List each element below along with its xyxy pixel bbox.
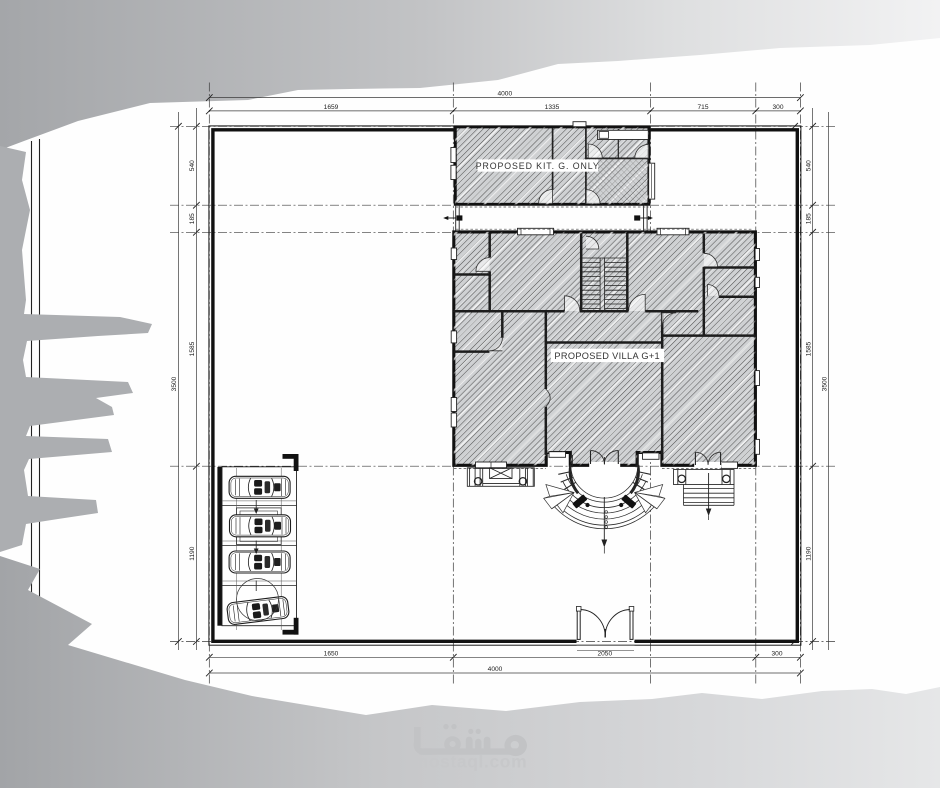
svg-text:1190: 1190 (189, 546, 196, 561)
svg-text:540: 540 (189, 160, 196, 171)
svg-text:300: 300 (772, 104, 783, 111)
svg-text:1659: 1659 (324, 104, 339, 111)
svg-text:300: 300 (771, 650, 782, 657)
svg-text:540: 540 (805, 160, 812, 171)
svg-text:3500: 3500 (171, 376, 178, 391)
svg-text:1585: 1585 (805, 341, 812, 356)
svg-text:715: 715 (697, 104, 708, 111)
svg-text:2050: 2050 (597, 650, 612, 657)
svg-text:PROPOSED VILLA G+1: PROPOSED VILLA G+1 (554, 351, 660, 361)
svg-text:1650: 1650 (324, 650, 339, 657)
svg-text:1585: 1585 (189, 341, 196, 356)
svg-text:185: 185 (805, 213, 812, 224)
svg-text:mostaql.com: mostaql.com (413, 752, 528, 772)
svg-text:3500: 3500 (821, 376, 828, 391)
svg-text:1335: 1335 (545, 104, 560, 111)
svg-text:185: 185 (189, 213, 196, 224)
svg-text:1190: 1190 (805, 546, 812, 561)
svg-text:PROPOSED KIT. G. ONLY: PROPOSED KIT. G. ONLY (476, 161, 600, 171)
svg-text:4000: 4000 (488, 666, 503, 673)
svg-text:4000: 4000 (497, 91, 512, 98)
